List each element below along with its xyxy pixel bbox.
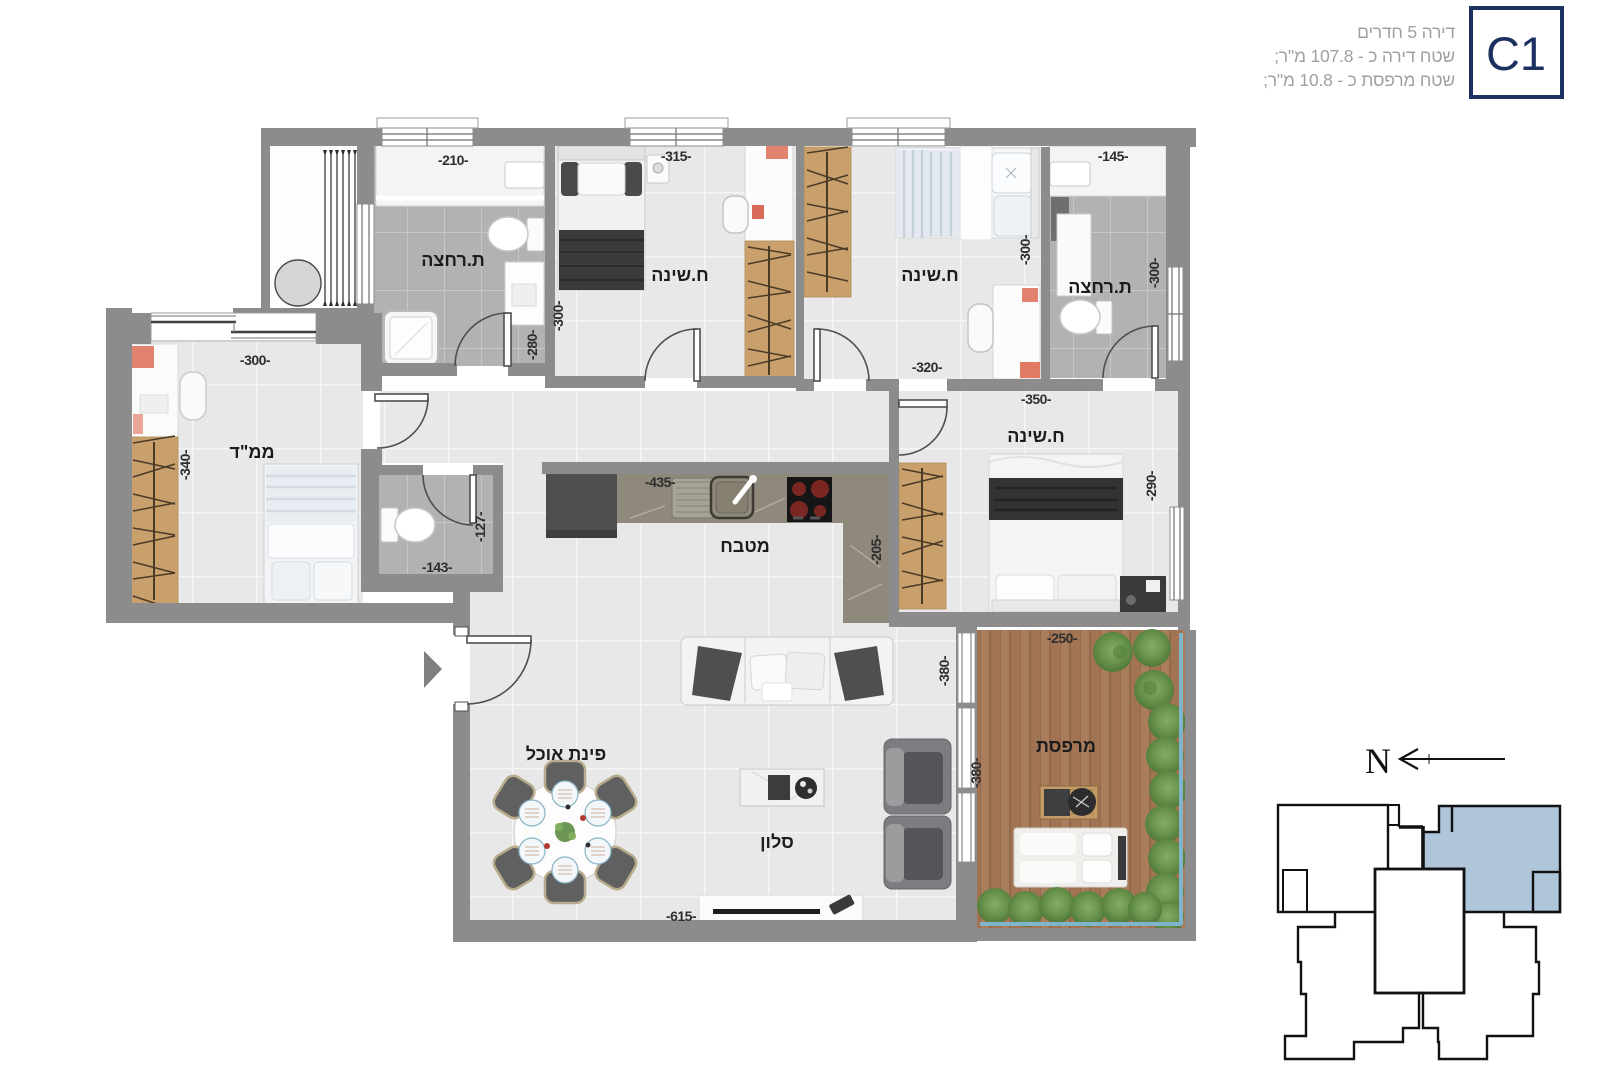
svg-text:-320-: -320- [912,359,943,375]
svg-text:מרפסת: מרפסת [1036,736,1096,756]
svg-text:-380-: -380- [968,757,984,788]
svg-text:מטבח: מטבח [720,536,770,556]
svg-text:פינת אוכל: פינת אוכל [526,744,606,764]
svg-text:-615-: -615- [666,908,697,924]
svg-text:ת.רחצה: ת.רחצה [1068,277,1131,297]
svg-text:-300-: -300- [1146,257,1162,288]
svg-text:-350-: -350- [1021,391,1052,407]
svg-text:ח.שינה: ח.שינה [901,265,958,285]
svg-text:סלון: סלון [760,832,794,852]
svg-text:ח.שינה: ח.שינה [1007,426,1064,446]
svg-text:N: N [1365,741,1391,781]
svg-text:-145-: -145- [1098,148,1129,164]
svg-text:-280-: -280- [524,329,540,360]
svg-text:-340-: -340- [177,449,193,480]
svg-text:-300-: -300- [1017,234,1033,265]
svg-text:C1: C1 [1486,27,1546,80]
svg-text:דירה 5 חדרים: דירה 5 חדרים [1357,22,1455,42]
svg-text:-290-: -290- [1143,470,1159,501]
svg-text:-380-: -380- [936,655,952,686]
svg-text:-300-: -300- [550,300,566,331]
svg-text:-205-: -205- [868,534,884,565]
svg-text:שטח מרפסת כ - 10.8 מ"ר;: שטח מרפסת כ - 10.8 מ"ר; [1263,70,1455,90]
svg-text:שטח דירה כ - 107.8 מ"ר;: שטח דירה כ - 107.8 מ"ר; [1274,46,1455,66]
svg-text:ח.שינה: ח.שינה [651,265,708,285]
svg-text:-315-: -315- [661,148,692,164]
svg-text:-250-: -250- [1047,630,1078,646]
svg-text:-127-: -127- [472,511,488,542]
svg-text:ת.רחצה: ת.רחצה [421,250,484,270]
svg-text:-435-: -435- [645,474,676,490]
svg-text:-210-: -210- [438,152,469,168]
svg-text:ממ"ד: ממ"ד [229,442,274,462]
svg-text:-143-: -143- [422,559,453,575]
svg-text:-300-: -300- [240,352,271,368]
